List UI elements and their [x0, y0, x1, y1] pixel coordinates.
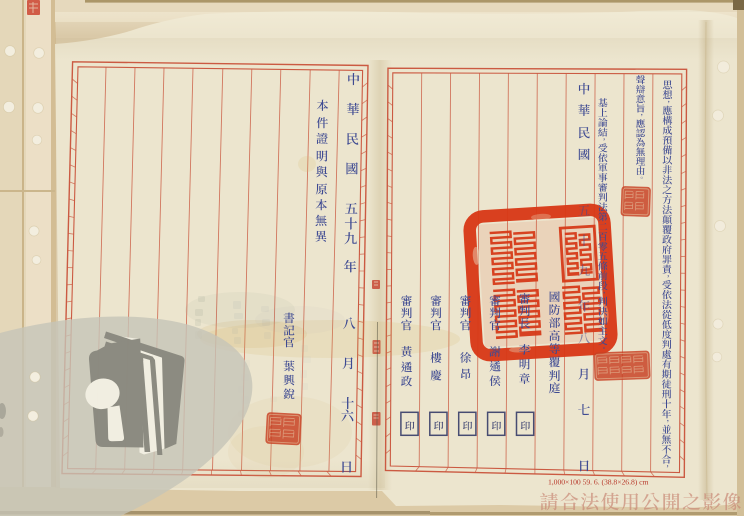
svg-text:1,000×100 59. 6. (38.8×26.8) c: 1,000×100 59. 6. (38.8×26.8) cm [548, 478, 649, 487]
